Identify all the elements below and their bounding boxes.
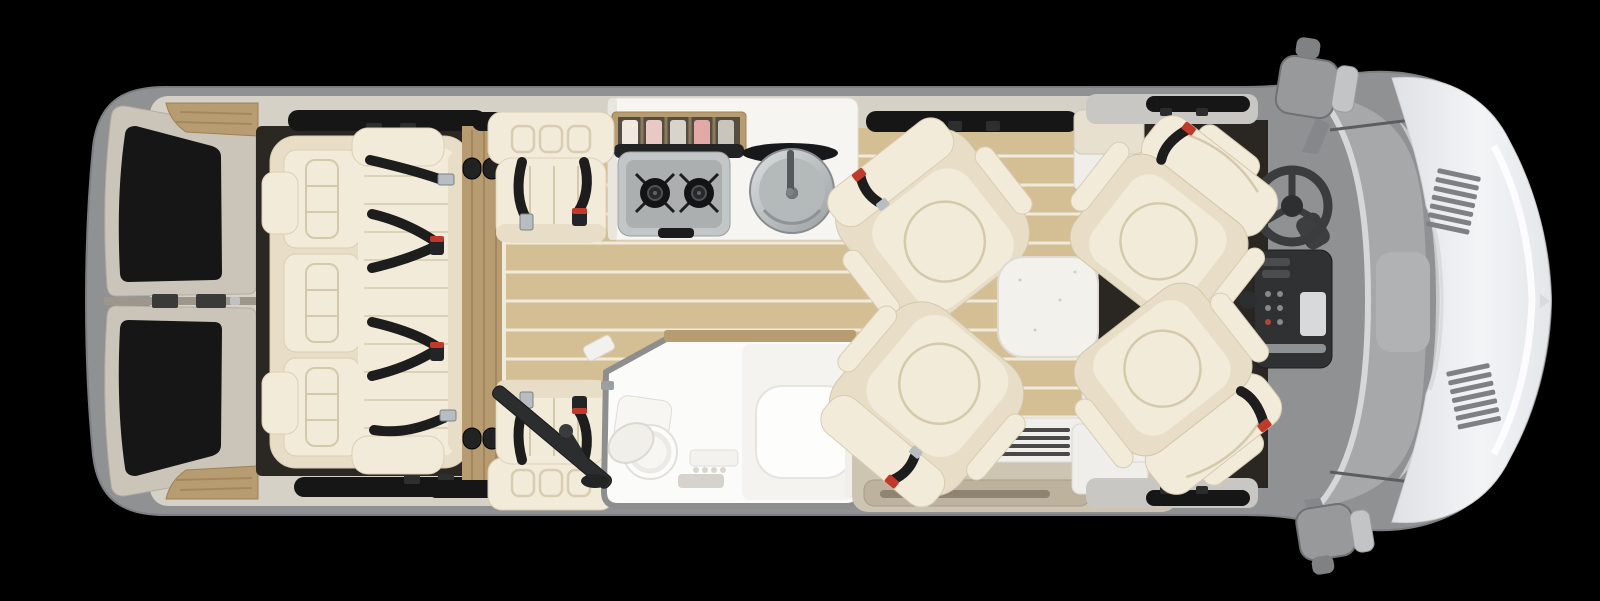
cooktop-stove bbox=[614, 144, 744, 238]
sofa-armrest-bottom bbox=[262, 372, 298, 434]
burner-left bbox=[636, 174, 674, 212]
floorplan-svg bbox=[0, 0, 1600, 601]
rear-door-window-bottom bbox=[119, 320, 222, 476]
sofa-headrest-bottom bbox=[352, 436, 444, 474]
sofa-armrest-top bbox=[262, 172, 298, 234]
rear-doors bbox=[104, 106, 260, 496]
rear-door-window-top bbox=[119, 126, 222, 282]
gear-knob bbox=[1239, 291, 1257, 309]
lounge-window bbox=[866, 111, 1078, 132]
cocktail-table bbox=[998, 257, 1098, 357]
jump-seat-top bbox=[488, 112, 614, 242]
bathroom-wood-ledge bbox=[664, 330, 856, 342]
burner-right bbox=[680, 174, 718, 212]
rv-floorplan-image bbox=[0, 0, 1600, 601]
faucet bbox=[787, 150, 794, 192]
rear-sofa bbox=[262, 128, 470, 474]
kitchen-galley bbox=[608, 98, 858, 240]
